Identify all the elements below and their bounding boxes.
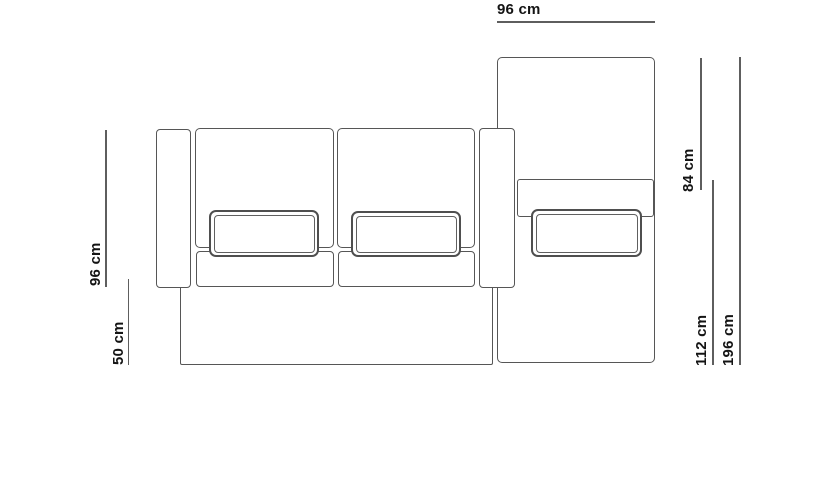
right-seat-cushion <box>351 211 461 257</box>
dimension-label-chaise-seat-length: 112 cm <box>694 315 710 366</box>
dimension-line-chaise-back-length <box>700 58 702 190</box>
chaise-cushion-seam <box>536 214 638 253</box>
sofa-base-outline <box>180 288 493 365</box>
dimension-label-chaise-total-length: 196 cm <box>721 314 737 366</box>
chaise-cushion <box>531 209 642 257</box>
dimension-line-chaise-seat-length <box>712 180 714 365</box>
left-armrest-outline <box>156 129 191 288</box>
dimension-line-chaise-total-length <box>739 57 741 365</box>
dimension-label-base-depth: 50 cm <box>111 321 127 365</box>
right-seat-cushion-seam <box>356 216 457 253</box>
dimension-line-sofa-depth <box>105 130 107 287</box>
dimension-line-base-depth <box>128 279 130 365</box>
left-seat-cushion-seam <box>214 215 315 253</box>
right-armrest-outline <box>479 128 515 288</box>
dimension-label-chaise-width: 96 cm <box>497 2 541 18</box>
dimension-label-sofa-depth: 96 cm <box>88 242 104 286</box>
sofa-dimension-diagram: 96 cm 96 cm 50 cm 84 cm 112 cm 196 cm <box>0 0 830 499</box>
dimension-label-chaise-back-length: 84 cm <box>681 148 697 192</box>
dimension-line-chaise-width <box>497 21 655 23</box>
left-seat-cushion <box>209 210 319 257</box>
